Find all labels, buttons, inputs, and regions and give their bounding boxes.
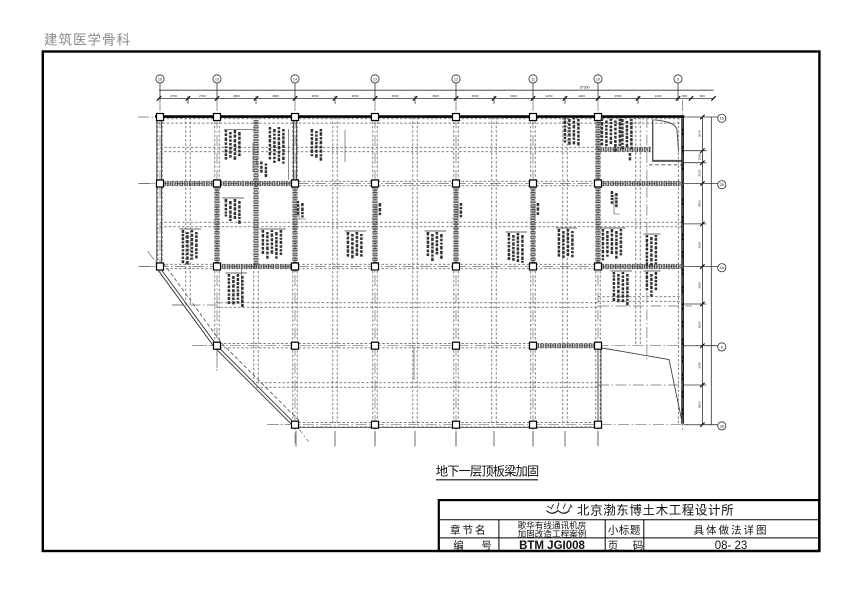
svg-text:28: 28: [720, 183, 724, 187]
svg-text:2025: 2025: [698, 169, 702, 176]
svg-text:4200: 4200: [698, 241, 702, 248]
svg-text:4500: 4500: [432, 94, 439, 98]
svg-text:10: 10: [596, 77, 600, 81]
svg-text:具体做法详图: 具体做法详图: [694, 524, 769, 537]
svg-text:16: 16: [158, 77, 162, 81]
svg-text:2700: 2700: [199, 94, 206, 98]
svg-text:1050: 1050: [698, 153, 702, 160]
svg-text:建筑医学骨科: 建筑医学骨科: [44, 33, 131, 48]
svg-text:3600: 3600: [698, 282, 702, 289]
svg-text:15: 15: [215, 77, 219, 81]
svg-text:4050: 4050: [698, 321, 702, 328]
svg-text:BTM JGI008: BTM JGI008: [519, 540, 585, 552]
svg-text:4500: 4500: [472, 94, 479, 98]
svg-text:4800: 4800: [272, 94, 279, 98]
svg-text:号: 号: [481, 540, 492, 552]
svg-text:加固改造工程案例: 加固改造工程案例: [518, 528, 587, 539]
svg-text:13: 13: [373, 77, 377, 81]
svg-text:2700: 2700: [170, 94, 177, 98]
svg-text:章节名: 章节名: [450, 524, 488, 537]
svg-text:4800: 4800: [233, 94, 240, 98]
svg-text:900: 900: [682, 94, 687, 98]
svg-text:1200: 1200: [655, 94, 662, 98]
svg-text:9: 9: [677, 77, 679, 81]
svg-text:18: 18: [720, 266, 724, 270]
svg-text:57300: 57300: [580, 85, 590, 89]
svg-text:页: 页: [608, 540, 619, 552]
svg-text:小标题: 小标题: [608, 525, 641, 537]
svg-text:编: 编: [453, 539, 464, 552]
svg-text:4500: 4500: [615, 94, 622, 98]
svg-text:900: 900: [700, 94, 705, 98]
svg-text:2250: 2250: [546, 94, 553, 98]
svg-text:4200: 4200: [578, 94, 585, 98]
svg-text:3900: 3900: [698, 401, 702, 408]
svg-text:14: 14: [293, 77, 297, 81]
svg-text:4800: 4800: [352, 94, 359, 98]
svg-text:3750: 3750: [698, 362, 702, 369]
svg-text:码: 码: [633, 540, 644, 552]
svg-text:12: 12: [454, 77, 458, 81]
svg-text:4500: 4500: [392, 94, 399, 98]
svg-text:08- 23: 08- 23: [715, 540, 748, 552]
svg-text:11: 11: [531, 77, 535, 81]
svg-text:8: 8: [721, 345, 723, 349]
svg-text:3900: 3900: [698, 200, 702, 207]
svg-text:北京渤东博土木工程设计所: 北京渤东博土木工程设计所: [577, 503, 734, 518]
svg-text:15: 15: [720, 117, 724, 121]
svg-text:38: 38: [720, 424, 724, 428]
svg-text:3075: 3075: [698, 130, 702, 137]
svg-text:4800: 4800: [312, 94, 319, 98]
svg-text:3000: 3000: [510, 94, 517, 98]
svg-text:地下一层顶板梁加固: 地下一层顶板梁加固: [436, 464, 539, 479]
